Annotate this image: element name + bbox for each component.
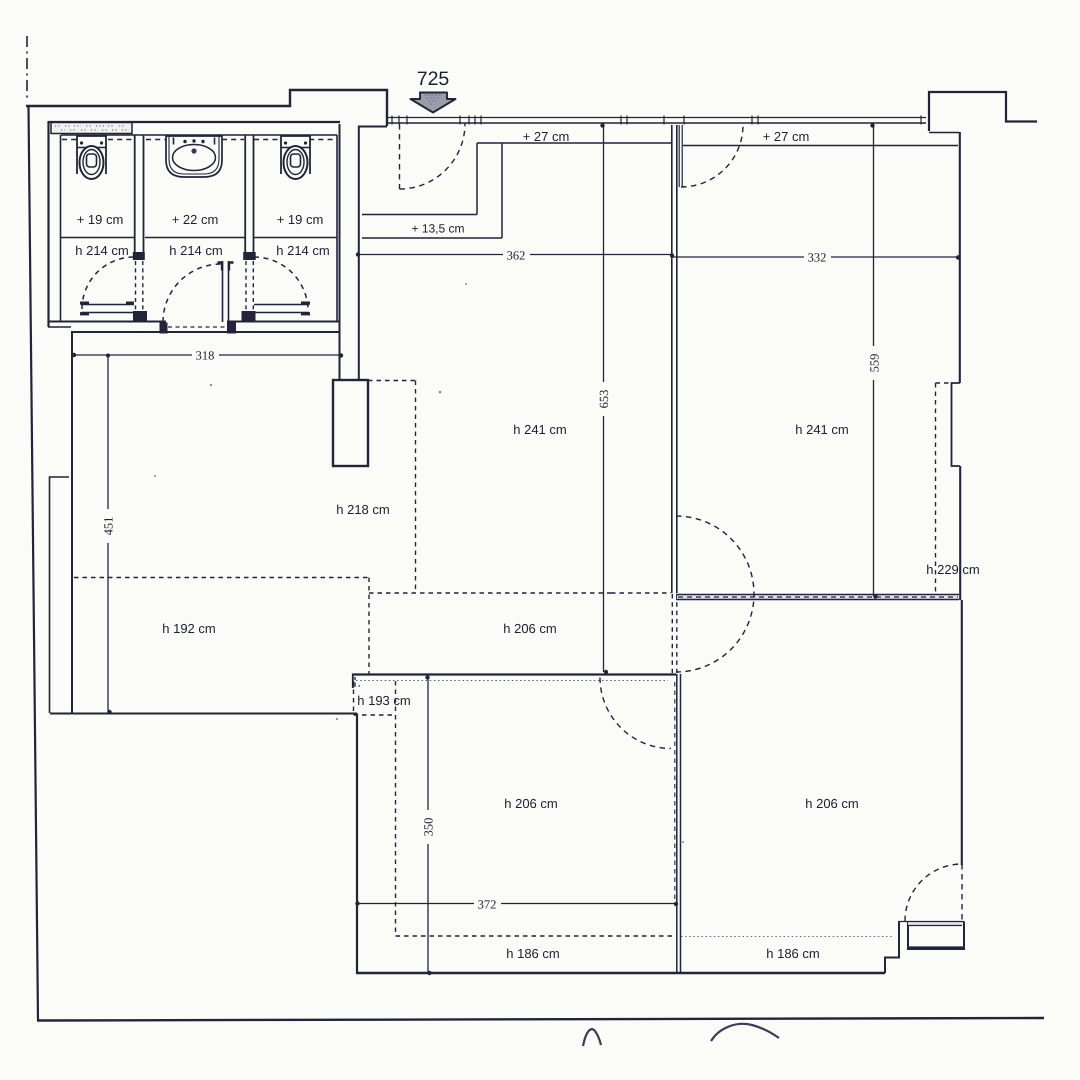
- svg-text:h 186 cm: h 186 cm: [506, 946, 559, 961]
- svg-text:332: 332: [808, 251, 827, 265]
- svg-text:h 206 cm: h 206 cm: [503, 621, 556, 636]
- svg-text:h 229 cm: h 229 cm: [926, 562, 979, 577]
- svg-text:h 206 cm: h 206 cm: [805, 796, 858, 811]
- svg-text:+ 19 cm: + 19 cm: [277, 212, 324, 227]
- svg-text:h 192 cm: h 192 cm: [162, 621, 215, 636]
- svg-text:+ 19 cm: + 19 cm: [77, 212, 124, 227]
- svg-text:559: 559: [868, 354, 882, 373]
- svg-text:372: 372: [478, 898, 497, 912]
- svg-text:+ 22 cm: + 22 cm: [172, 212, 219, 227]
- svg-text:h 214 cm: h 214 cm: [276, 243, 329, 258]
- svg-text:h 186 cm: h 186 cm: [766, 946, 819, 961]
- svg-text:+ 27 cm: + 27 cm: [523, 129, 570, 144]
- svg-text:318: 318: [196, 349, 215, 363]
- svg-text:725: 725: [417, 68, 450, 90]
- svg-text:653: 653: [597, 390, 611, 409]
- svg-text:h 214 cm: h 214 cm: [169, 243, 222, 258]
- svg-text:h 218 cm: h 218 cm: [336, 502, 389, 517]
- svg-text:h 241 cm: h 241 cm: [513, 422, 566, 437]
- svg-text:h 241 cm: h 241 cm: [795, 422, 848, 437]
- svg-text:h 193 cm: h 193 cm: [357, 693, 410, 708]
- svg-text:+ 13,5 cm: + 13,5 cm: [411, 222, 464, 236]
- svg-text:362: 362: [507, 249, 526, 263]
- svg-text:350: 350: [422, 818, 436, 837]
- svg-text:h 214 cm: h 214 cm: [75, 243, 128, 258]
- svg-text:+ 27 cm: + 27 cm: [763, 129, 810, 144]
- svg-text:451: 451: [102, 517, 116, 536]
- svg-text:h 206 cm: h 206 cm: [504, 796, 557, 811]
